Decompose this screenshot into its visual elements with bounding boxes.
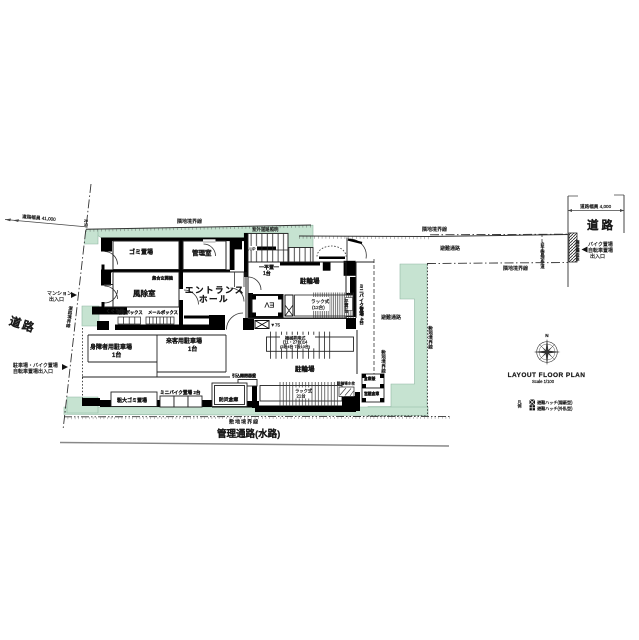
svg-text:自転車置場出入口: 自転車置場出入口 (13, 368, 53, 375)
svg-text:くぐり戸: くぐり戸 (106, 308, 124, 315)
svg-text:ホール: ホール (199, 294, 229, 304)
svg-text:ゴミ置場: ゴミ置場 (129, 248, 153, 256)
svg-text:敷地境界線: 敷地境界線 (428, 325, 434, 349)
svg-text:隣地境界線: 隣地境界線 (422, 226, 447, 233)
svg-text:ミニバイク置場 4台: ミニバイク置場 4台 (359, 284, 365, 326)
svg-text:1台: 1台 (112, 351, 121, 359)
svg-text:N: N (545, 333, 549, 338)
svg-text:一平置一: 一平置一 (259, 264, 279, 271)
svg-text:倉庫兼: 倉庫兼 (363, 376, 376, 381)
svg-text:来客用駐車場: 来客用駐車場 (166, 337, 202, 345)
svg-text:敷地境界線: 敷地境界線 (381, 349, 387, 373)
svg-text:駐輪場: 駐輪場 (295, 364, 315, 373)
svg-text:平置1台: 平置1台 (345, 299, 350, 314)
svg-text:管理通路(水路): 管理通路(水路) (217, 428, 280, 440)
svg-text:集合玄関機: 集合玄関機 (151, 275, 174, 282)
svg-text:敷地境界線: 敷地境界線 (229, 418, 259, 426)
svg-text:21台: 21台 (297, 393, 306, 400)
svg-text:防災倉庫: 防災倉庫 (219, 396, 238, 403)
svg-text:駐車場・バイク置場: 駐車場・バイク置場 (13, 362, 58, 369)
svg-text:凡例: 凡例 (518, 400, 523, 409)
svg-text:LAYOUT FLOOR PLAN: LAYOUT FLOOR PLAN (508, 372, 586, 379)
svg-text:管理室: 管理室 (192, 248, 212, 257)
svg-text:▼75: ▼75 (271, 323, 281, 328)
svg-text:1台: 1台 (263, 270, 271, 277)
svg-text:駐輪場水栓: 駐輪場水栓 (337, 381, 355, 386)
svg-text:EV: EV (264, 301, 274, 310)
svg-text:道路: 道路 (8, 314, 38, 336)
svg-text:ミニバイク置場 2台: ミニバイク置場 2台 (160, 389, 201, 396)
svg-text:Scale 1/100: Scale 1/100 (532, 379, 555, 384)
svg-text:ラック式: ラック式 (311, 298, 330, 305)
svg-text:風除室: 風除室 (133, 288, 156, 298)
svg-text:駐輪場: 駐輪場 (300, 276, 320, 285)
svg-text:引込開閉器盤: 引込開閉器盤 (232, 372, 257, 378)
svg-text:出入口: 出入口 (590, 253, 605, 260)
svg-text:出入口: 出入口 (49, 296, 64, 303)
svg-text:自主管理歩道: 自主管理歩道 (540, 241, 546, 270)
svg-text:(12台): (12台) (312, 304, 325, 311)
svg-text:35: 35 (84, 223, 88, 227)
svg-text:道路境界線: 道路境界線 (65, 304, 74, 328)
svg-text:営繕倉庫: 営繕倉庫 (364, 391, 379, 396)
svg-text:自転車置場: 自転車置場 (588, 247, 613, 254)
svg-text:隣地境界線: 隣地境界線 (503, 265, 528, 272)
svg-text:避難ハッチ(外臥型): 避難ハッチ(外臥型) (537, 405, 573, 411)
svg-text:避難通路: 避難通路 (440, 245, 460, 252)
svg-text:隣地境界線: 隣地境界線 (177, 218, 202, 225)
svg-text:道路: 道路 (587, 218, 616, 232)
svg-text:(2段4台 7段10台): (2段4台 7段10台) (280, 344, 311, 349)
svg-text:バイク置場: バイク置場 (588, 241, 613, 248)
svg-text:1台: 1台 (188, 345, 197, 353)
svg-text:避難ハッチ(隠蔽型): 避難ハッチ(隠蔽型) (537, 399, 573, 405)
svg-text:道路幅員 4,000: 道路幅員 4,000 (580, 203, 612, 210)
svg-text:UP: UP (250, 246, 256, 251)
svg-text:身障者用駐車場: 身障者用駐車場 (90, 343, 132, 351)
svg-text:室外道路照明: 室外道路照明 (252, 226, 279, 233)
svg-text:粗大ゴミ置場: 粗大ゴミ置場 (117, 397, 147, 404)
svg-text:メールボックス: メールボックス (148, 309, 178, 316)
svg-text:避難通路: 避難通路 (381, 314, 401, 321)
